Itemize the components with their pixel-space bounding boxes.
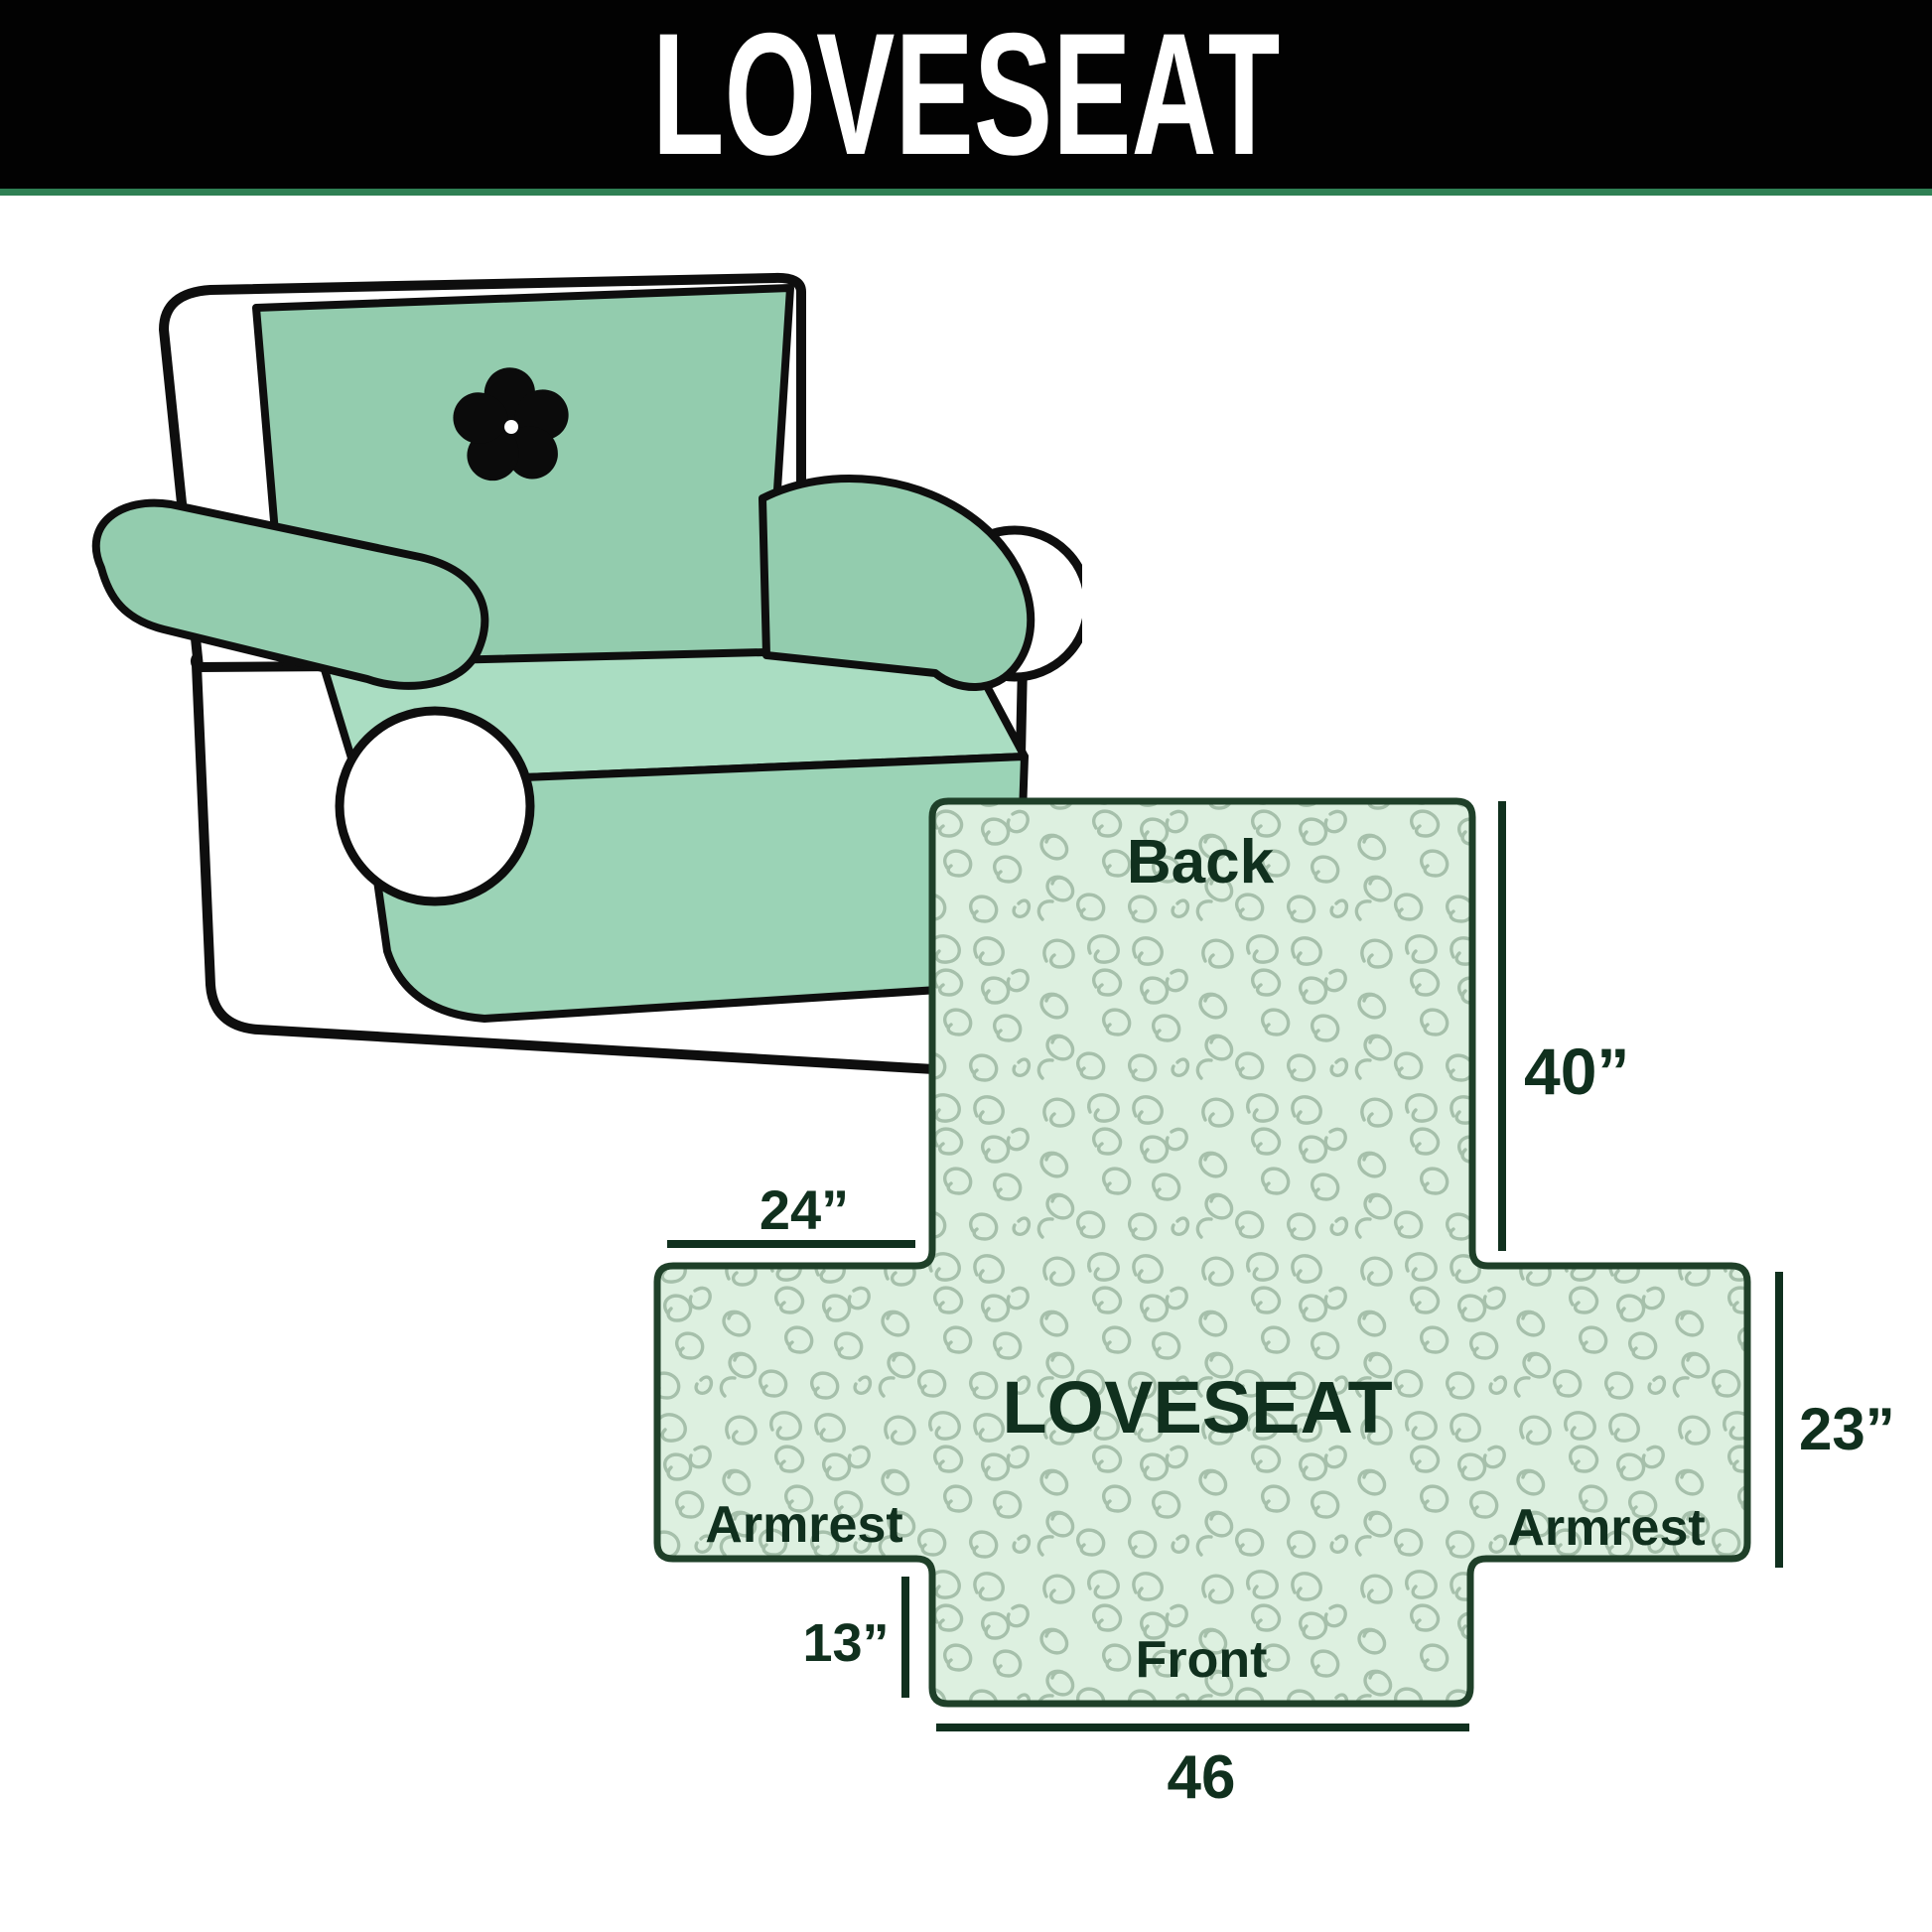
center-label: LOVESEAT bbox=[1002, 1366, 1392, 1449]
back-height-value: 40” bbox=[1524, 1035, 1629, 1108]
front-drop-value: 13” bbox=[802, 1613, 889, 1673]
back-top-width-value: 24” bbox=[759, 1178, 849, 1241]
infographic-page: LOVESEAT bbox=[0, 0, 1932, 1932]
page-title: LOVESEAT bbox=[652, 8, 1281, 182]
cover-layout-diagram: Back LOVESEAT Armrest Armrest Front 40” … bbox=[556, 774, 1932, 1932]
armrest-height-value: 23” bbox=[1799, 1396, 1895, 1462]
armrest-left-label: Armrest bbox=[705, 1496, 902, 1554]
back-label: Back bbox=[1127, 828, 1275, 897]
cover-outline-shape bbox=[657, 801, 1747, 1704]
armrest-right-label: Armrest bbox=[1507, 1499, 1705, 1557]
title-banner: LOVESEAT bbox=[0, 0, 1932, 189]
front-width-value: 46 bbox=[1168, 1743, 1236, 1812]
sofa-right-armrest-cover bbox=[762, 479, 1031, 687]
sofa-left-armrest-roll bbox=[340, 711, 530, 901]
front-label: Front bbox=[1136, 1631, 1268, 1689]
banner-divider bbox=[0, 189, 1932, 196]
